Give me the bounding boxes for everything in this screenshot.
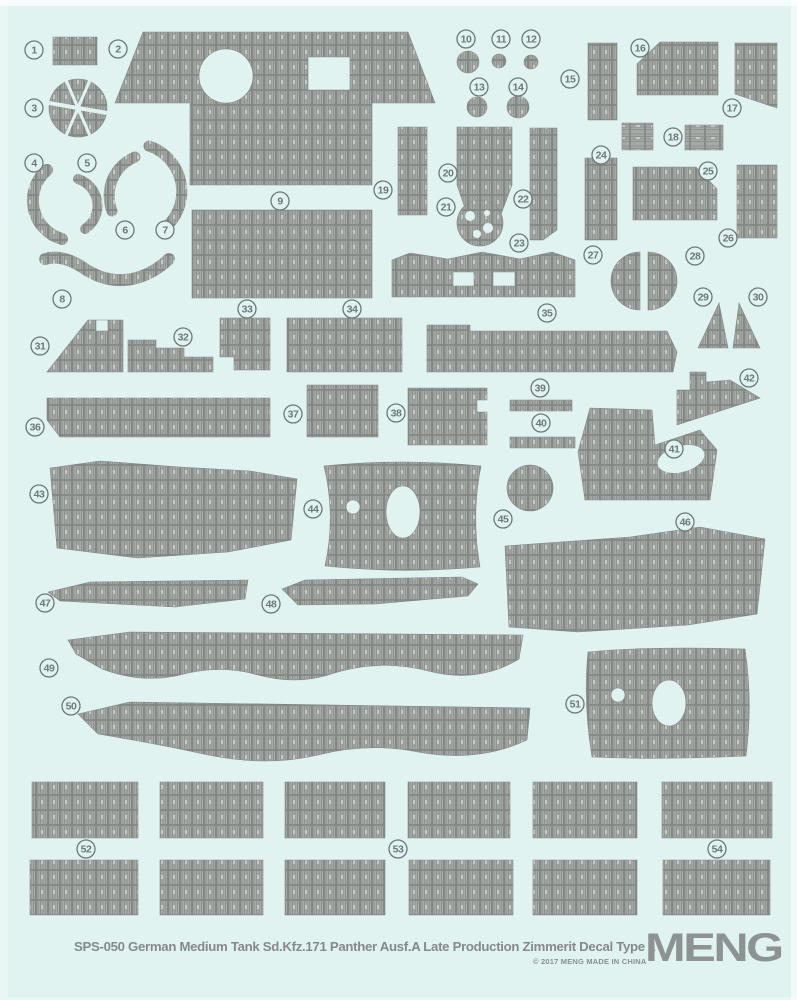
decal-sheet: 1234567891011121314151617181920212223242… <box>0 0 797 1000</box>
decal-piece-52d <box>30 860 138 915</box>
part-number-text: 25 <box>703 166 714 178</box>
decal-piece-8 <box>45 258 169 281</box>
decal-piece-53b <box>533 782 637 838</box>
part-number-text: 5 <box>84 158 90 170</box>
part-number-text: 16 <box>635 43 646 55</box>
part-number-6: 6 <box>116 221 134 239</box>
part-number-33: 33 <box>238 300 256 318</box>
part-number-text: 47 <box>40 598 51 610</box>
part-number-text: 11 <box>496 34 507 46</box>
sheet-title: SPS-050 German Medium Tank Sd.Kfz.171 Pa… <box>74 939 734 954</box>
decal-piece-54c <box>663 860 770 915</box>
decal-piece-43 <box>50 461 297 558</box>
part-number-17: 17 <box>723 99 741 117</box>
part-number-41: 41 <box>665 440 683 458</box>
decal-piece-18a <box>622 123 653 150</box>
decal-piece-22 <box>530 128 557 240</box>
decal-piece-27 <box>611 252 640 310</box>
decal-piece-24 <box>585 158 617 240</box>
decal-piece-12 <box>524 55 538 69</box>
part-number-11: 11 <box>492 30 510 48</box>
cutout-gear-hole-2 <box>483 223 493 233</box>
part-number-text: 44 <box>308 504 319 516</box>
part-number-4: 4 <box>25 154 43 172</box>
part-number-text: 8 <box>59 294 65 306</box>
part-number-text: 22 <box>518 194 529 206</box>
part-number-text: 48 <box>266 599 277 611</box>
part-number-text: 31 <box>35 341 46 353</box>
part-number-29: 29 <box>694 288 712 306</box>
part-number-30: 30 <box>749 288 767 306</box>
part-number-38: 38 <box>387 404 405 422</box>
part-number-16: 16 <box>631 39 649 57</box>
part-number-48: 48 <box>262 595 280 613</box>
part-number-text: 50 <box>66 701 77 713</box>
part-number-5: 5 <box>78 154 96 172</box>
part-number-39: 39 <box>531 379 549 397</box>
decal-piece-46 <box>505 527 765 632</box>
part-number-text: 15 <box>565 74 576 86</box>
decal-piece-4 <box>33 170 62 239</box>
decal-sheet-svg: 1234567891011121314151617181920212223242… <box>0 0 797 1000</box>
decal-piece-30 <box>733 303 760 348</box>
part-number-47: 47 <box>36 594 54 612</box>
part-number-text: 30 <box>753 292 764 304</box>
part-number-51: 51 <box>566 695 584 713</box>
part-number-text: 52 <box>81 844 92 856</box>
decal-pieces-layer <box>30 32 777 915</box>
part-number-3: 3 <box>25 99 43 117</box>
part-number-text: 1 <box>31 45 37 57</box>
part-number-text: 38 <box>391 408 402 420</box>
decal-piece-17 <box>735 43 777 108</box>
part-number-text: 2 <box>115 44 121 56</box>
part-number-42: 42 <box>740 369 758 387</box>
part-number-text: 33 <box>242 304 253 316</box>
part-number-text: 10 <box>461 34 472 46</box>
part-number-1: 1 <box>25 41 43 59</box>
part-number-text: 17 <box>727 103 738 115</box>
decal-piece-48 <box>282 577 478 605</box>
decal-piece-11 <box>492 54 506 68</box>
decal-piece-36 <box>47 398 270 437</box>
part-number-49: 49 <box>40 659 58 677</box>
decal-piece-15 <box>588 43 617 120</box>
part-number-12: 12 <box>522 30 540 48</box>
part-number-27: 27 <box>584 246 602 264</box>
part-number-text: 26 <box>723 233 734 245</box>
part-number-24: 24 <box>592 146 610 164</box>
decal-piece-51 <box>586 648 749 758</box>
part-number-text: 20 <box>443 168 454 180</box>
decal-piece-47 <box>48 580 248 607</box>
part-number-text: 35 <box>542 308 553 320</box>
part-number-8: 8 <box>53 290 71 308</box>
decal-piece-32 <box>128 340 213 372</box>
part-number-text: 34 <box>347 304 358 316</box>
part-number-22: 22 <box>514 190 532 208</box>
part-number-text: 23 <box>514 238 525 250</box>
part-number-34: 34 <box>343 300 361 318</box>
decal-piece-33 <box>220 318 270 370</box>
part-number-text: 7 <box>162 225 168 237</box>
part-number-19: 19 <box>374 181 392 199</box>
part-number-text: 29 <box>698 292 709 304</box>
decal-piece-2 <box>115 32 435 185</box>
part-number-23: 23 <box>510 234 528 252</box>
part-number-text: 43 <box>34 489 45 501</box>
part-number-text: 4 <box>31 158 37 170</box>
decal-piece-19 <box>398 127 427 215</box>
part-number-20: 20 <box>439 164 457 182</box>
decal-piece-53c <box>285 860 385 915</box>
part-number-7: 7 <box>156 221 174 239</box>
part-number-31: 31 <box>31 337 49 355</box>
part-number-53: 53 <box>389 840 407 858</box>
decal-piece-28 <box>648 252 677 310</box>
part-number-text: 41 <box>669 444 680 456</box>
decal-piece-54a <box>662 782 772 838</box>
part-number-44: 44 <box>304 500 322 518</box>
part-number-text: 14 <box>513 82 524 94</box>
part-number-text: 21 <box>441 202 452 214</box>
part-number-text: 12 <box>526 34 537 46</box>
part-number-text: 46 <box>680 517 691 529</box>
part-number-text: 9 <box>277 196 283 208</box>
part-number-2: 2 <box>109 40 127 58</box>
decal-piece-52b <box>160 782 263 838</box>
decal-piece-52a <box>32 782 138 838</box>
part-number-13: 13 <box>470 78 488 96</box>
decal-piece-45 <box>507 465 553 511</box>
decal-piece-50 <box>78 702 530 761</box>
part-number-32: 32 <box>174 328 192 346</box>
decal-piece-44 <box>324 462 481 570</box>
part-number-text: 27 <box>588 250 599 262</box>
part-number-text: 51 <box>570 699 581 711</box>
part-number-text: 37 <box>288 409 299 421</box>
decal-piece-13 <box>467 97 487 117</box>
decal-piece-40 <box>510 437 575 448</box>
part-number-18: 18 <box>664 128 682 146</box>
part-number-text: 53 <box>393 844 404 856</box>
decal-piece-5 <box>78 179 98 229</box>
part-number-28: 28 <box>686 247 704 265</box>
decal-piece-31 <box>47 320 123 372</box>
decal-piece-14 <box>507 96 529 118</box>
part-number-text: 49 <box>44 663 55 675</box>
part-number-14: 14 <box>509 78 527 96</box>
decal-piece-7 <box>149 146 182 231</box>
part-number-text: 19 <box>378 185 389 197</box>
part-number-text: 13 <box>474 82 485 94</box>
part-number-50: 50 <box>62 697 80 715</box>
cutout-gear-hole-4 <box>484 210 490 216</box>
part-number-text: 18 <box>668 132 679 144</box>
part-number-text: 36 <box>30 422 41 434</box>
decal-piece-9 <box>192 210 372 298</box>
cutout-gear-hole-3 <box>473 230 481 238</box>
decal-piece-34 <box>287 318 402 372</box>
part-number-text: 45 <box>498 514 509 526</box>
meng-brand-logo: MENG <box>645 929 797 967</box>
part-number-46: 46 <box>676 513 694 531</box>
decal-piece-23 <box>392 252 575 297</box>
decal-piece-10 <box>457 51 479 73</box>
decal-piece-18b <box>685 125 723 150</box>
part-number-9: 9 <box>271 192 289 210</box>
decal-piece-38 <box>408 388 487 445</box>
part-number-text: 32 <box>178 332 189 344</box>
decal-piece-6 <box>109 157 135 211</box>
part-number-15: 15 <box>561 70 579 88</box>
part-number-43: 43 <box>30 485 48 503</box>
decal-piece-49 <box>68 632 523 680</box>
decal-piece-39 <box>510 400 572 411</box>
decal-piece-54b <box>533 860 637 915</box>
part-number-25: 25 <box>699 162 717 180</box>
decal-piece-1 <box>53 37 97 65</box>
part-number-text: 40 <box>536 418 547 430</box>
part-number-text: 28 <box>690 251 701 263</box>
part-number-36: 36 <box>26 418 44 436</box>
decal-piece-21 <box>457 200 503 246</box>
part-number-text: 6 <box>122 225 128 237</box>
part-number-26: 26 <box>719 229 737 247</box>
part-number-40: 40 <box>532 414 550 432</box>
decal-piece-52e <box>160 860 263 915</box>
part-number-54: 54 <box>708 840 726 858</box>
part-number-10: 10 <box>457 30 475 48</box>
part-number-35: 35 <box>538 304 556 322</box>
part-number-text: 42 <box>744 373 755 385</box>
decal-piece-52c <box>285 782 385 838</box>
decal-piece-26 <box>737 165 777 238</box>
decal-piece-37 <box>307 385 378 437</box>
part-number-37: 37 <box>284 405 302 423</box>
decal-piece-53a <box>408 782 510 838</box>
decal-piece-53d <box>409 860 513 915</box>
part-number-45: 45 <box>494 510 512 528</box>
cutout-gear-hole-1 <box>465 211 475 221</box>
part-number-text: 24 <box>596 150 607 162</box>
part-number-text: 39 <box>535 383 546 395</box>
part-number-text: 3 <box>31 103 37 115</box>
part-number-21: 21 <box>437 198 455 216</box>
decal-piece-35 <box>427 325 677 372</box>
part-number-52: 52 <box>77 840 95 858</box>
decal-piece-29 <box>698 303 728 348</box>
part-number-text: 54 <box>712 844 723 856</box>
